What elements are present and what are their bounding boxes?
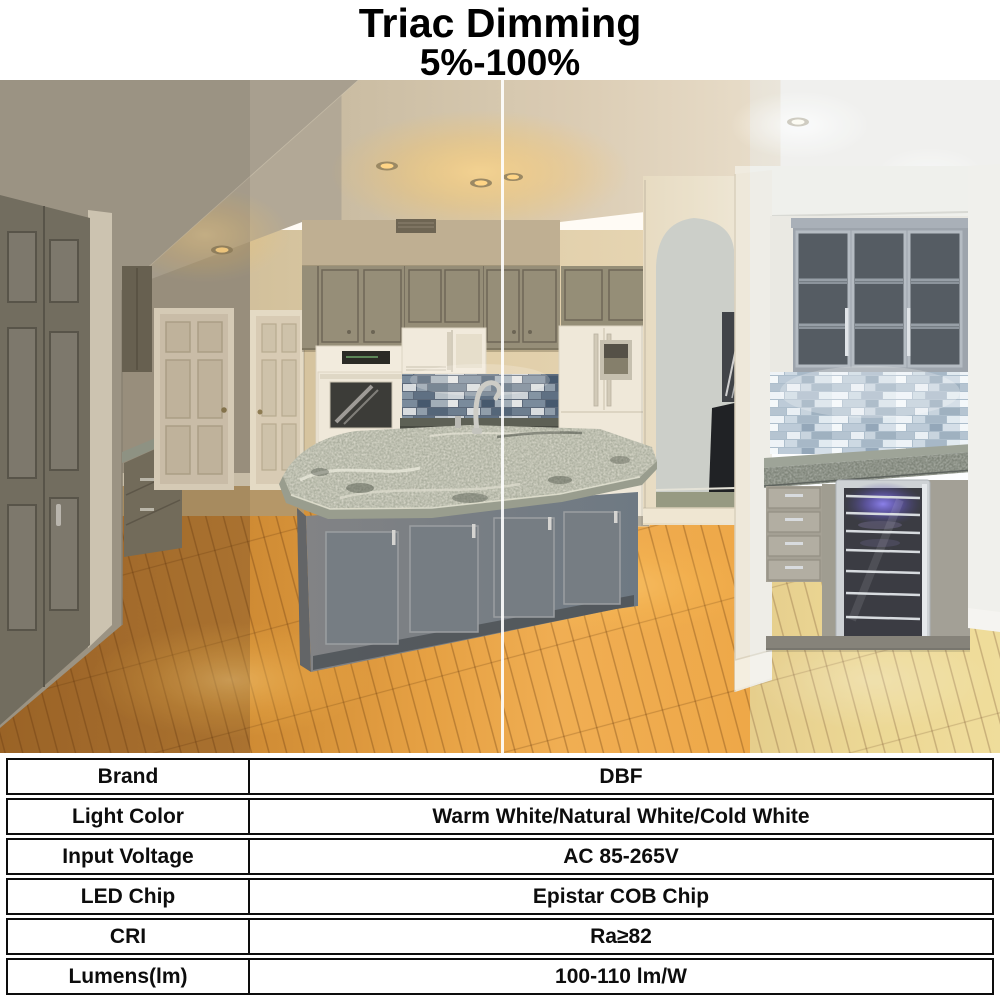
glass-cabinets bbox=[791, 218, 974, 377]
spec-table: Brand DBF Light Color Warm White/Natural… bbox=[6, 758, 994, 998]
spec-value: AC 85-265V bbox=[250, 838, 994, 875]
page-title: Triac Dimming bbox=[0, 0, 1000, 46]
table-row: Light Color Warm White/Natural White/Col… bbox=[6, 798, 994, 835]
page-subtitle: 5%-100% bbox=[0, 46, 1000, 80]
table-row: CRI Ra≥82 bbox=[6, 918, 994, 955]
product-photo bbox=[0, 80, 1000, 753]
spec-value: Ra≥82 bbox=[250, 918, 994, 955]
photo-divider-seam bbox=[501, 80, 504, 753]
header: Triac Dimming 5%-100% bbox=[0, 0, 1000, 80]
spec-label: Brand bbox=[6, 758, 250, 795]
table-row: LED Chip Epistar COB Chip bbox=[6, 878, 994, 915]
right-wall bbox=[968, 164, 1000, 632]
table-row: Input Voltage AC 85-265V bbox=[6, 838, 994, 875]
spec-label: Light Color bbox=[6, 798, 250, 835]
spec-label: Lumens(lm) bbox=[6, 958, 250, 995]
kitchen-photo-illustration bbox=[0, 80, 1000, 753]
spec-value: 100-110 lm/W bbox=[250, 958, 994, 995]
bar-drawers bbox=[766, 486, 822, 582]
spec-label: CRI bbox=[6, 918, 250, 955]
spec-value: Epistar COB Chip bbox=[250, 878, 994, 915]
spec-value: Warm White/Natural White/Cold White bbox=[250, 798, 994, 835]
spec-label: LED Chip bbox=[6, 878, 250, 915]
wine-cooler bbox=[836, 480, 930, 644]
table-row: Lumens(lm) 100-110 lm/W bbox=[6, 958, 994, 995]
soffit bbox=[302, 219, 560, 266]
table-row: Brand DBF bbox=[6, 758, 994, 795]
spec-value: DBF bbox=[250, 758, 994, 795]
spec-label: Input Voltage bbox=[6, 838, 250, 875]
